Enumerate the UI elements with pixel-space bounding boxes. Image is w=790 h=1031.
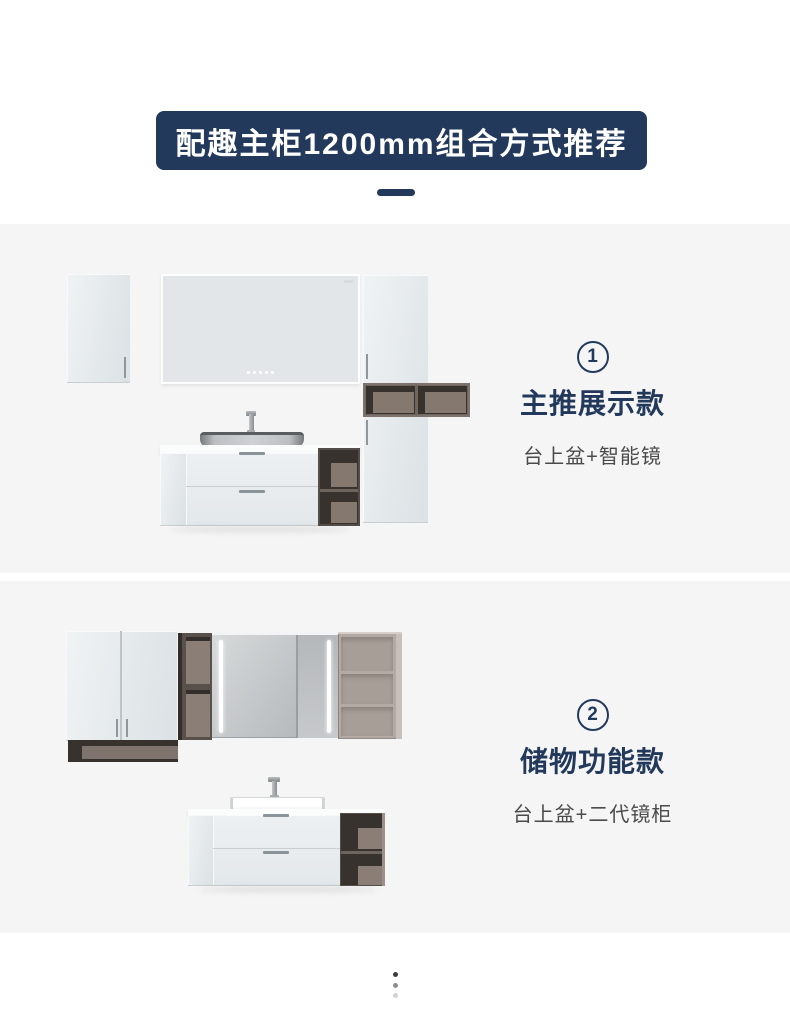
s2-drawer-handle-top	[263, 814, 289, 817]
s2-vanity-shelf-inner-bottom	[358, 866, 382, 885]
s1-shelf-cell-right-inner	[425, 392, 466, 413]
s2-taupe-shelf-cabinet	[338, 632, 402, 739]
s2-vanity-side-door	[188, 815, 213, 886]
s2-under-niche-inner	[82, 746, 178, 759]
s1-vanity-open-shelf	[318, 448, 360, 526]
s2-led-strip-right	[327, 640, 331, 733]
s1-shelf-cell-left	[366, 386, 415, 414]
option-2-info: 2 储物功能款 台上盆+二代镜柜	[490, 699, 695, 827]
s1-vanity-side-door	[160, 453, 186, 526]
s2-vanity-open-shelf	[340, 813, 385, 886]
s2-led-strip-left	[219, 640, 223, 733]
s2-taupe-cell-1	[341, 637, 393, 671]
s1-open-shelf-box	[363, 383, 470, 417]
s2-cabinet-door-seam	[120, 631, 122, 741]
s1-mirror-logo	[344, 280, 353, 283]
s1-tall-cabinet-handle-top	[366, 354, 368, 379]
s1-drawer-handle-bottom	[239, 490, 265, 493]
s2-column-cell-bottom	[186, 690, 210, 737]
s2-cabinet-handle-right	[126, 719, 128, 737]
header-underline-dash	[377, 189, 415, 196]
s2-vanity-shelf-inner-top	[358, 828, 382, 849]
header-banner: 配趣主柜1200mm组合方式推荐	[156, 111, 647, 170]
header-title: 配趣主柜1200mm组合方式推荐	[175, 119, 627, 163]
s2-column-cell-top	[186, 637, 210, 684]
s2-taupe-cell-2	[341, 674, 393, 704]
option-2-subtitle: 台上盆+二代镜柜	[490, 798, 695, 827]
s1-shelf-cell-right	[418, 386, 467, 414]
s2-mirror-right-door	[298, 635, 338, 738]
s2-taupe-cell-3	[341, 707, 393, 736]
mirror-control-dots-icon	[163, 371, 358, 374]
s1-vanity-shelf-inner-bottom	[331, 502, 357, 523]
s1-vanity-shelf-divider	[320, 489, 358, 492]
footer-ellipsis-dot-1	[393, 972, 398, 977]
s1-tall-cabinet-handle-bottom	[366, 420, 368, 445]
s2-drawer-handle-bottom	[263, 851, 289, 854]
footer-ellipsis-dot-2	[393, 983, 398, 988]
option-2-title: 储物功能款	[490, 740, 695, 780]
s1-shelf-cell-left-inner	[373, 392, 414, 413]
s2-vanity-shadow	[198, 887, 378, 892]
s2-vanity-shelf-divider	[341, 851, 382, 854]
s2-open-column	[178, 633, 212, 740]
s1-wall-cabinet-handle	[124, 357, 126, 378]
s1-wall-cabinet	[67, 274, 130, 383]
s2-double-wall-cabinet	[66, 631, 177, 741]
s1-vanity-shelf-inner-top	[331, 463, 357, 487]
s1-drawer-divider	[186, 486, 318, 487]
option-1-number: 1	[587, 346, 598, 368]
s1-smart-mirror	[161, 274, 360, 384]
option-1-subtitle: 台上盆+智能镜	[490, 440, 695, 469]
s2-cabinet-handle-left	[116, 719, 118, 737]
option-1-info: 1 主推展示款 台上盆+智能镜	[490, 341, 695, 469]
s2-drawer-divider	[213, 848, 340, 849]
option-1-title: 主推展示款	[490, 382, 695, 422]
option-2-number: 2	[587, 704, 598, 726]
option-1-number-badge: 1	[577, 341, 609, 373]
s2-under-niche	[68, 740, 178, 762]
footer-ellipsis-dot-3	[393, 993, 398, 998]
s1-vanity-shadow	[170, 527, 350, 532]
page: 配趣主柜1200mm组合方式推荐	[0, 0, 790, 1031]
s1-drawer-handle-top	[239, 452, 265, 455]
option-2-number-badge: 2	[577, 699, 609, 731]
s2-mirror-cabinet	[212, 635, 338, 738]
